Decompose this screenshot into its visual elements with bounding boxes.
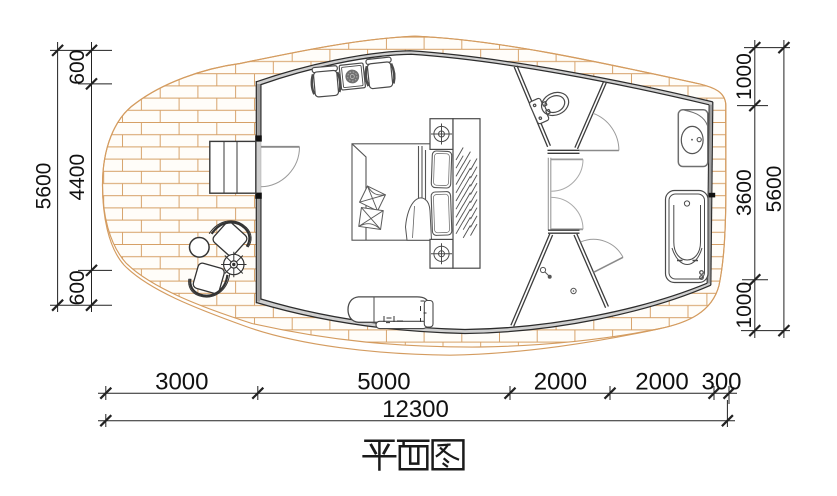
svg-text:12300: 12300 bbox=[382, 396, 449, 423]
svg-text:2000: 2000 bbox=[635, 369, 688, 396]
svg-text:4400: 4400 bbox=[66, 154, 89, 201]
svg-text:600: 600 bbox=[66, 270, 89, 305]
svg-text:2000: 2000 bbox=[534, 369, 587, 396]
svg-text:300: 300 bbox=[701, 369, 741, 396]
svg-text:5000: 5000 bbox=[357, 369, 410, 396]
svg-text:600: 600 bbox=[66, 50, 89, 85]
svg-text:5600: 5600 bbox=[763, 166, 786, 213]
svg-text:1000: 1000 bbox=[733, 282, 756, 329]
svg-text:3600: 3600 bbox=[733, 169, 756, 216]
svg-text:1000: 1000 bbox=[733, 53, 756, 100]
svg-text:3000: 3000 bbox=[155, 369, 208, 396]
svg-text:5600: 5600 bbox=[33, 163, 56, 210]
